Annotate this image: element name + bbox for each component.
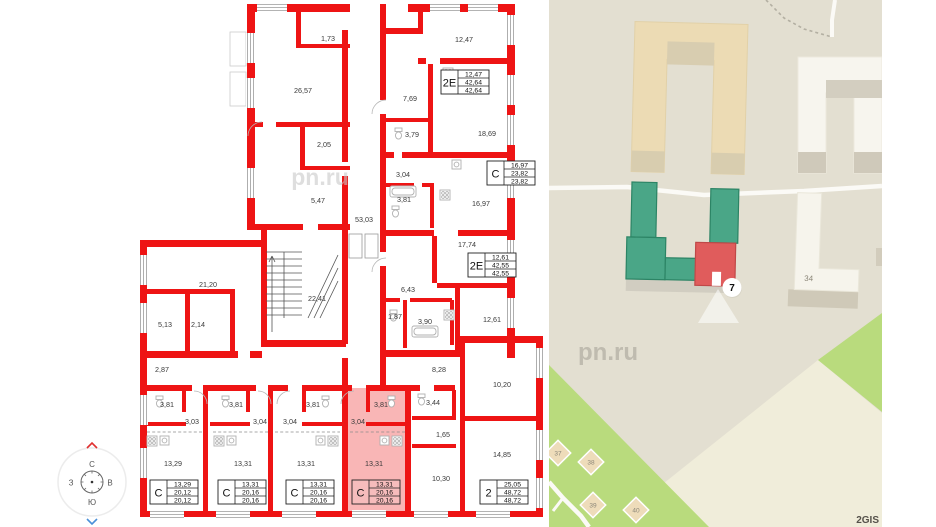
room-area-label: 13,31 (297, 459, 315, 468)
svg-text:13,31: 13,31 (310, 481, 327, 488)
svg-text:В: В (107, 479, 112, 488)
svg-text:12,47: 12,47 (465, 71, 482, 78)
svg-text:34: 34 (804, 274, 814, 283)
room-area-label: 3,04 (396, 170, 410, 179)
stairs (266, 252, 338, 332)
svg-text:2: 2 (485, 488, 491, 500)
floorplan[interactable]: 1,7326,572,055,4753,0312,477,693,7918,69… (0, 0, 548, 527)
svg-text:С: С (89, 460, 95, 469)
room-area-label: 2,87 (155, 365, 169, 374)
room-area-label: 10,30 (432, 474, 450, 483)
room-area-label: 5,47 (311, 196, 325, 205)
svg-text:38: 38 (587, 460, 595, 467)
balcony-outline (230, 32, 246, 106)
svg-text:20,16: 20,16 (376, 497, 393, 504)
svg-text:20,16: 20,16 (310, 497, 327, 504)
room-area-label: 3,81 (229, 400, 243, 409)
svg-text:23,82: 23,82 (511, 178, 528, 185)
room-labels: 1,7326,572,055,4753,0312,477,693,7918,69… (155, 34, 511, 483)
svg-text:С: С (155, 488, 163, 500)
svg-text:48,72: 48,72 (504, 489, 521, 496)
svg-text:С: С (223, 488, 231, 500)
room-area-label: 2,14 (191, 320, 205, 329)
room-area-label: 8,28 (432, 365, 446, 374)
unit-info-table: 2Е 12,47 42,64 42,64 (441, 70, 489, 94)
building-fragment (876, 248, 882, 266)
svg-text:20,16: 20,16 (242, 497, 259, 504)
room-area-label: 3,90 (418, 317, 432, 326)
room-area-label: 1,73 (321, 34, 335, 43)
room-area-label: 53,03 (355, 215, 373, 224)
compass: С Ю З В (58, 443, 126, 524)
room-area-label: 3,81 (160, 400, 174, 409)
unit-info-table: 2 25,05 48,72 48,72 (480, 480, 528, 504)
svg-text:16,97: 16,97 (511, 162, 528, 169)
svg-text:2Е: 2Е (470, 261, 483, 273)
svg-text:20,16: 20,16 (376, 489, 393, 496)
room-area-label: 26,57 (294, 86, 312, 95)
room-area-label: 3,44 (426, 398, 440, 407)
svg-text:23,82: 23,82 (511, 170, 528, 177)
room-area-label: 6,43 (401, 285, 415, 294)
unit-info-table: 2Е 12,61 42,55 42,55 (468, 253, 516, 277)
svg-text:С: С (492, 169, 500, 181)
unit-info-table-selected[interactable]: С 13,31 20,16 20,16 (352, 480, 400, 504)
room-area-label: 13,31 (365, 459, 383, 468)
svg-text:25,05: 25,05 (504, 481, 521, 488)
room-area-label: 3,04 (283, 417, 297, 426)
room-area-label: 3,81 (397, 195, 411, 204)
unit-info-table: С 16,97 23,82 23,82 (487, 161, 535, 185)
room-area-label: 17,74 (458, 240, 476, 249)
svg-text:48,72: 48,72 (504, 497, 521, 504)
room-area-label: 3,81 (374, 400, 388, 409)
room-area-label: 12,47 (455, 35, 473, 44)
room-area-label: 1,65 (436, 430, 450, 439)
room-area-label: 21,20 (199, 280, 217, 289)
room-area-label: 3,79 (405, 130, 419, 139)
svg-text:С: С (357, 488, 365, 500)
room-area-label: 3,03 (185, 417, 199, 426)
unit-info-table: С 13,31 20,16 20,16 (286, 480, 334, 504)
room-area-label: 3,81 (306, 400, 320, 409)
svg-text:13,29: 13,29 (174, 481, 191, 488)
entrance-marker (712, 272, 721, 286)
svg-text:42,55: 42,55 (492, 262, 509, 269)
unit-info-table: С 13,31 20,16 20,16 (218, 480, 266, 504)
room-area-label: 13,29 (164, 459, 182, 468)
svg-text:20,12: 20,12 (174, 497, 191, 504)
svg-text:20,12: 20,12 (174, 489, 191, 496)
map-watermark: pn.ru (578, 339, 638, 366)
svg-text:12,61: 12,61 (492, 254, 509, 261)
svg-text:7: 7 (729, 283, 735, 294)
svg-text:2Е: 2Е (443, 78, 456, 90)
room-area-label: 2,05 (317, 140, 331, 149)
room-area-label: 1,87 (388, 312, 402, 321)
svg-text:13,31: 13,31 (376, 481, 393, 488)
svg-text:С: С (291, 488, 299, 500)
compass-south-arrow (87, 519, 97, 524)
room-area-label: 13,31 (234, 459, 252, 468)
apartment-viewer: 1,7326,572,055,4753,0312,477,693,7918,69… (0, 0, 936, 527)
svg-text:20,16: 20,16 (310, 489, 327, 496)
unit-info-table: С 13,29 20,12 20,12 (150, 480, 198, 504)
svg-text:З: З (69, 479, 74, 488)
svg-text:Ю: Ю (88, 498, 96, 507)
room-area-label: 5,13 (158, 320, 172, 329)
plan-watermark: pn.ru (291, 164, 349, 190)
room-area-label: 18,69 (478, 129, 496, 138)
room-area-label: 7,69 (403, 94, 417, 103)
svg-text:40: 40 (632, 508, 640, 515)
svg-text:42,55: 42,55 (492, 270, 509, 277)
map-attribution[interactable]: 2GIS (856, 515, 879, 526)
room-area-label: 3,04 (253, 417, 267, 426)
svg-text:42,64: 42,64 (465, 87, 482, 94)
room-area-label: 22,41 (308, 294, 326, 303)
room-area-label: 10,20 (493, 380, 511, 389)
svg-text:20,16: 20,16 (242, 489, 259, 496)
room-area-label: 12,61 (483, 315, 501, 324)
room-area-label: 3,04 (351, 417, 365, 426)
room-area-label: 14,85 (493, 450, 511, 459)
svg-text:13,31: 13,31 (242, 481, 259, 488)
svg-text:42,64: 42,64 (465, 79, 482, 86)
map[interactable]: 7 34 37383940 pn.ru 2GIS (549, 0, 882, 527)
svg-text:37: 37 (554, 451, 562, 458)
room-area-label: 16,97 (472, 199, 490, 208)
svg-text:39: 39 (589, 503, 597, 510)
elevator (349, 234, 378, 258)
